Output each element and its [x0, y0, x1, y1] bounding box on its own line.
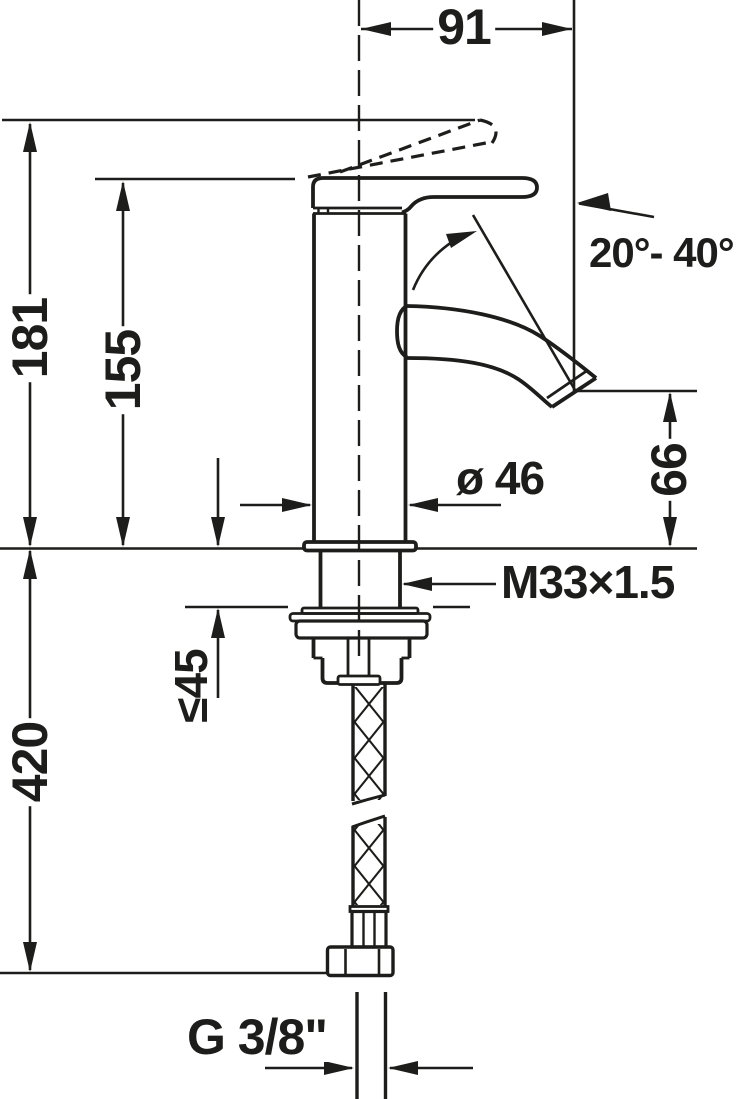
arrow-420-bottom [23, 942, 37, 972]
hose-braid-lower [355, 824, 384, 905]
technical-drawing-faucet: 91 181 155 20°- 40° ø 46 M33×1.5 66 ≤45 … [0, 0, 739, 1099]
arrow-91-right [542, 22, 572, 36]
arrow-angle-arc [446, 231, 477, 248]
arrow-155-top [116, 181, 130, 211]
spout-top-curve [407, 306, 596, 378]
dim-label-spout-outlet-height: 66 [644, 439, 694, 501]
arrow-45-down [211, 517, 225, 547]
arrow-66-bottom [663, 517, 677, 547]
extension-lines [0, 0, 697, 973]
spout-outlet-rim [547, 370, 588, 398]
arrow-181-bottom [23, 517, 37, 547]
dim-label-total-height: 181 [5, 294, 55, 382]
hex-nut [328, 947, 394, 976]
arrow-g38-left [324, 1061, 354, 1075]
lever-handle-raised [308, 120, 496, 177]
arrow-m33 [402, 577, 432, 591]
dim-label-top-width: 91 [433, 2, 495, 52]
hose-collar [338, 676, 380, 685]
ferrule-body [352, 912, 386, 948]
angle-axis-line [473, 215, 575, 390]
dim-label-lever-angle: 20°- 40° [585, 232, 738, 274]
dim-label-shank-thread: M33×1.5 [497, 559, 678, 605]
arrow-91-left [361, 22, 391, 36]
mounting-nut-top [296, 621, 427, 638]
arrow-181-top [23, 122, 37, 152]
arrow-angle-leader [577, 193, 611, 211]
arrow-d46-right [408, 498, 438, 512]
angle-arc [413, 242, 452, 290]
dim-label-hose-length: 420 [5, 718, 55, 806]
hose-braid-upper [355, 687, 384, 800]
dim-label-body-diameter: ø 46 [452, 455, 548, 501]
arrow-45-up [211, 608, 225, 638]
arrow-66-top [663, 392, 677, 422]
dim-label-lever-height: 155 [98, 326, 148, 414]
arrow-g38-right [388, 1061, 418, 1075]
spout-bottom-curve [407, 358, 552, 407]
dim-label-supply-connection: G 3/8" [183, 1012, 331, 1062]
drawing-linework [0, 0, 739, 1099]
dim-label-max-mounting-thickness: ≤45 [168, 645, 214, 726]
faucet-outline [290, 120, 596, 1099]
arrow-420-top [23, 549, 37, 579]
arrow-155-bottom [116, 517, 130, 547]
arrow-d46-left [282, 498, 312, 512]
